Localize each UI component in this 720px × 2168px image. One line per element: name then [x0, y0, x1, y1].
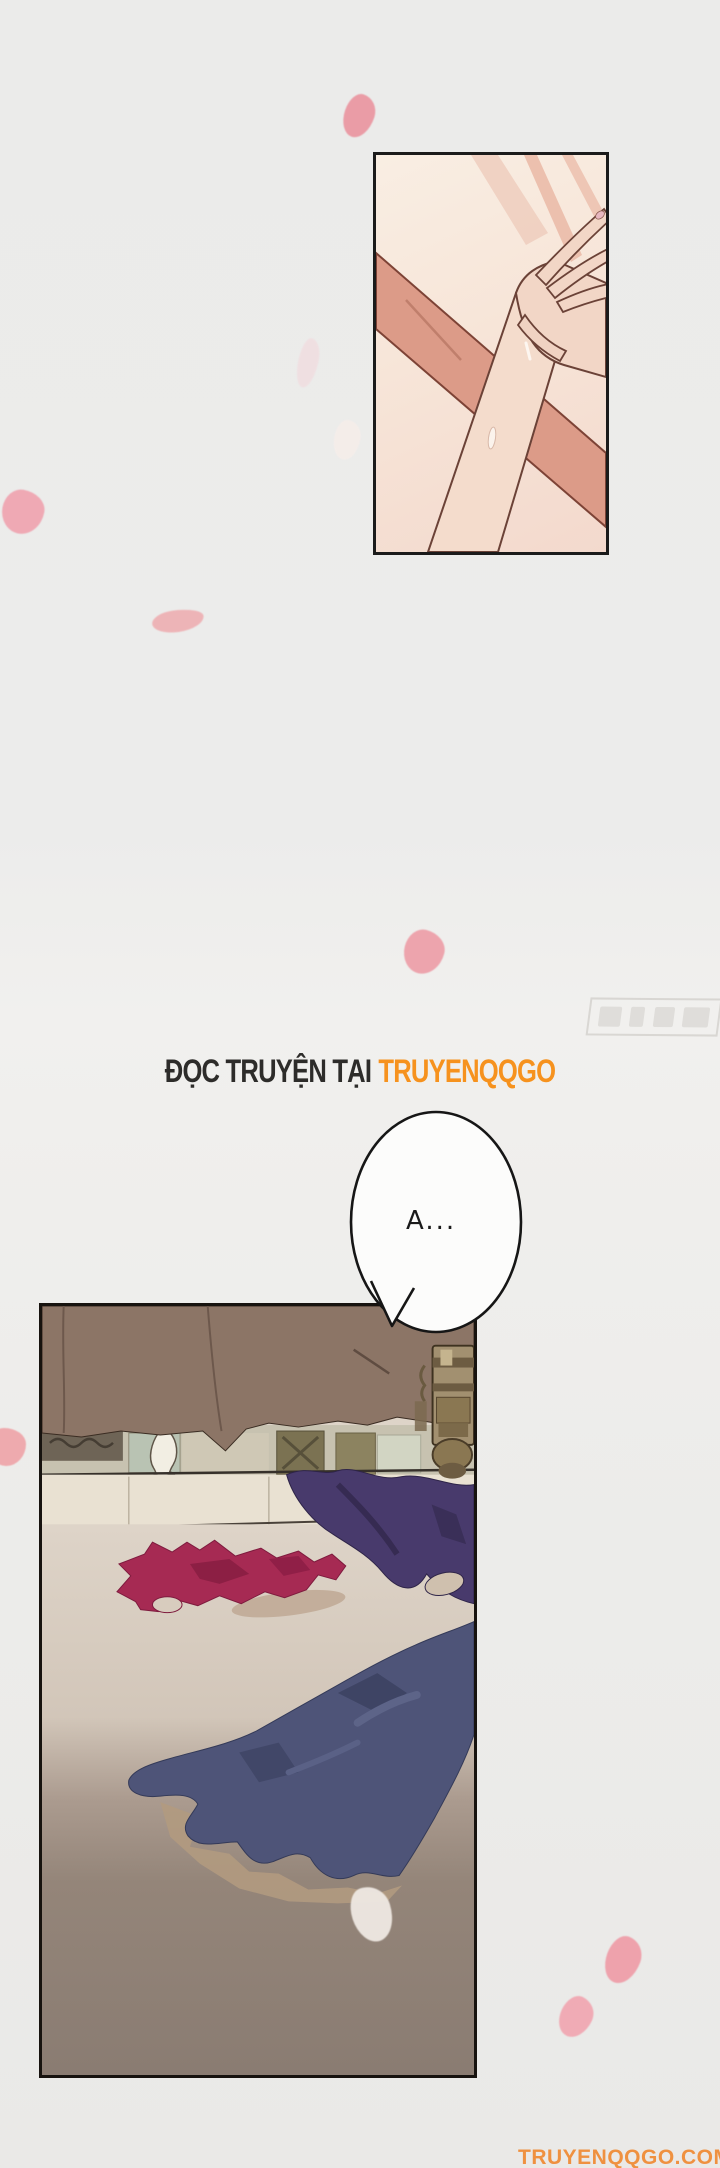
hands-panel: [373, 152, 609, 555]
bedpost-carving: [437, 1397, 471, 1423]
bed-gap-through-crimson: [152, 1597, 182, 1613]
watermark-glyph: [629, 1007, 646, 1027]
curtain-fold: [63, 1306, 64, 1433]
watermark-glyph: [652, 1007, 675, 1027]
bedpost-band: [433, 1358, 474, 1368]
watermark-glyph: [597, 1007, 622, 1027]
bedpost-foot-base: [438, 1463, 466, 1479]
petal: [399, 926, 448, 978]
bedroom-panel: [39, 1303, 477, 2078]
petal: [338, 90, 380, 141]
petal: [293, 336, 323, 389]
site-name: TRUYENQQGO: [378, 1053, 555, 1089]
site-banner: ĐỌC TRUYỆN TẠITRUYENQQGO: [72, 1053, 648, 1090]
bedroom-artwork: [42, 1306, 474, 2075]
inlay-panel: [377, 1435, 420, 1473]
petal: [0, 1428, 26, 1466]
petal: [331, 418, 364, 462]
bedpost-highlight: [440, 1350, 452, 1366]
watermark-glyph: [682, 1007, 711, 1027]
petal: [151, 606, 206, 635]
banner-prefix-text: ĐỌC TRUYỆN TẠI: [165, 1053, 371, 1089]
bedpost-neck: [438, 1423, 468, 1437]
ornate-square: [336, 1433, 375, 1475]
comic-page: ĐỌC TRUYỆN TẠITRUYENQQGO: [0, 0, 720, 2168]
upper-finger-shape-2: [562, 155, 604, 220]
hands-artwork: [376, 155, 606, 552]
bedpost-band: [433, 1383, 474, 1391]
petal: [0, 487, 48, 538]
petal: [553, 1991, 600, 2043]
petal: [599, 1932, 647, 1989]
bubble-text: A...: [406, 1206, 486, 1236]
faded-watermark-stamp: [586, 997, 720, 1036]
footer-site-url: TRUYENQQGO.COM: [518, 2146, 720, 2168]
bedpost-ornament: [415, 1401, 427, 1431]
